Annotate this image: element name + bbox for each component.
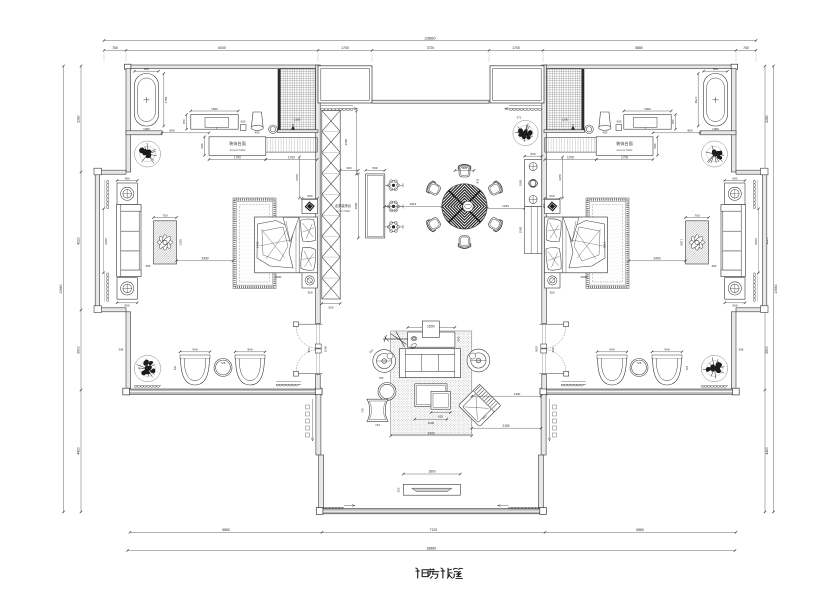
svg-text:Accent Table: Accent Table — [230, 148, 246, 152]
svg-text:600: 600 — [125, 176, 130, 180]
svg-text:1750: 1750 — [164, 96, 168, 103]
svg-text:10660: 10660 — [59, 284, 63, 294]
svg-text:390: 390 — [146, 264, 151, 268]
svg-text:600: 600 — [200, 143, 204, 148]
svg-text:装饰台面: 装饰台面 — [616, 140, 633, 147]
svg-text:1700: 1700 — [621, 155, 628, 159]
svg-text:940: 940 — [192, 347, 197, 351]
svg-text:走廊装饰台: 走廊装饰台 — [335, 203, 351, 208]
svg-text:450: 450 — [603, 131, 608, 135]
svg-text:800: 800 — [169, 129, 174, 133]
svg-text:600: 600 — [732, 304, 737, 308]
svg-text:1350: 1350 — [179, 239, 183, 246]
svg-text:500: 500 — [328, 306, 333, 310]
svg-text:装饰台面: 装饰台面 — [229, 140, 246, 147]
svg-text:2100: 2100 — [754, 238, 758, 245]
svg-text:300: 300 — [307, 291, 312, 295]
svg-text:1350: 1350 — [680, 239, 684, 246]
svg-text:500: 500 — [530, 152, 535, 156]
svg-text:1700: 1700 — [234, 155, 241, 159]
svg-text:1500: 1500 — [519, 226, 523, 233]
svg-text:5880: 5880 — [222, 528, 230, 532]
svg-text:1600: 1600 — [323, 345, 327, 352]
svg-text:600: 600 — [653, 143, 657, 148]
svg-text:1700: 1700 — [341, 46, 349, 50]
svg-text:Accent Table: Accent Table — [336, 210, 351, 213]
svg-text:600: 600 — [241, 120, 246, 124]
svg-text:390: 390 — [712, 264, 717, 268]
svg-text:23660: 23660 — [424, 35, 436, 40]
svg-text:110: 110 — [173, 365, 177, 370]
svg-text:2190: 2190 — [502, 424, 509, 428]
svg-text:2430: 2430 — [201, 256, 208, 260]
svg-text:368: 368 — [739, 348, 744, 352]
svg-text:720: 720 — [361, 408, 365, 413]
svg-text:400: 400 — [462, 166, 467, 170]
svg-text:2900: 2900 — [77, 346, 81, 354]
svg-text:2280: 2280 — [765, 115, 769, 123]
svg-text:1800: 1800 — [428, 470, 435, 474]
svg-text:16880: 16880 — [426, 546, 436, 550]
svg-text:1300: 1300 — [294, 118, 301, 122]
svg-text:500: 500 — [549, 194, 554, 198]
svg-text:600: 600 — [732, 176, 737, 180]
svg-text:750: 750 — [379, 376, 384, 380]
svg-text:2000: 2000 — [354, 202, 358, 209]
svg-text:1970: 1970 — [295, 174, 299, 181]
svg-text:800: 800 — [144, 67, 149, 71]
svg-text:2000: 2000 — [275, 275, 282, 279]
svg-text:620: 620 — [438, 415, 443, 419]
svg-text:2400: 2400 — [427, 431, 434, 435]
svg-text:800: 800 — [307, 347, 311, 352]
svg-text:940: 940 — [247, 347, 252, 351]
svg-text:1700: 1700 — [567, 155, 574, 159]
svg-text:800: 800 — [551, 348, 555, 353]
svg-text:4220: 4220 — [77, 237, 81, 245]
svg-text:Accent Table: Accent Table — [617, 148, 633, 152]
svg-text:2280: 2280 — [344, 138, 348, 145]
svg-text:350: 350 — [182, 119, 186, 124]
svg-text:812: 812 — [476, 178, 480, 183]
svg-text:2430: 2430 — [653, 256, 660, 260]
svg-text:940: 940 — [664, 347, 669, 351]
svg-text:760: 760 — [743, 46, 749, 50]
svg-text:1600: 1600 — [535, 346, 539, 353]
svg-text:4420: 4420 — [77, 447, 81, 455]
svg-text:590: 590 — [372, 166, 377, 170]
svg-text:1000: 1000 — [428, 421, 435, 425]
svg-text:1500: 1500 — [644, 107, 651, 111]
svg-text:5880: 5880 — [636, 528, 644, 532]
svg-text:1200: 1200 — [562, 118, 569, 122]
svg-text:150: 150 — [542, 203, 546, 208]
svg-text:350: 350 — [397, 487, 401, 492]
svg-text:800: 800 — [687, 129, 692, 133]
svg-text:7120: 7120 — [430, 528, 438, 532]
svg-text:2280: 2280 — [77, 115, 81, 123]
svg-text:1400: 1400 — [256, 241, 260, 248]
svg-text:1500: 1500 — [211, 107, 218, 111]
svg-text:450: 450 — [255, 131, 260, 135]
svg-text:940: 940 — [609, 347, 614, 351]
svg-text:1750: 1750 — [694, 97, 698, 104]
svg-text:1060: 1060 — [143, 127, 150, 131]
svg-text:2900: 2900 — [765, 346, 769, 354]
svg-text:2100: 2100 — [104, 238, 108, 245]
svg-text:110: 110 — [685, 366, 689, 371]
svg-text:725: 725 — [637, 361, 642, 365]
svg-text:371: 371 — [517, 116, 522, 120]
svg-text:1060: 1060 — [712, 127, 719, 131]
svg-text:1814: 1814 — [410, 202, 417, 206]
svg-text:368: 368 — [119, 348, 124, 352]
svg-text:1500: 1500 — [519, 179, 523, 186]
svg-text:2000: 2000 — [581, 275, 588, 279]
svg-text:6000: 6000 — [218, 46, 226, 50]
svg-text:1700: 1700 — [288, 155, 295, 159]
svg-text:1234: 1234 — [502, 204, 509, 208]
svg-text:4420: 4420 — [765, 447, 769, 455]
svg-text:700: 700 — [694, 213, 699, 217]
svg-text:1970: 1970 — [558, 174, 562, 181]
svg-text:1700: 1700 — [512, 46, 520, 50]
svg-text:600: 600 — [124, 304, 129, 308]
svg-text:5880: 5880 — [635, 46, 643, 50]
svg-text:1500: 1500 — [427, 325, 435, 329]
svg-text:700: 700 — [162, 213, 167, 217]
svg-text:600: 600 — [617, 120, 622, 124]
svg-text:1390: 1390 — [514, 392, 521, 396]
svg-text:350: 350 — [671, 119, 675, 124]
svg-text:3720: 3720 — [427, 46, 435, 50]
svg-text:500: 500 — [457, 336, 461, 341]
svg-text:500: 500 — [307, 194, 312, 198]
svg-text:10660: 10660 — [774, 284, 778, 294]
svg-text:725: 725 — [221, 361, 226, 365]
svg-text:300: 300 — [549, 291, 554, 295]
svg-text:1400: 1400 — [603, 242, 607, 249]
svg-text:734: 734 — [375, 423, 380, 427]
svg-text:800: 800 — [713, 67, 718, 71]
svg-text:900: 900 — [346, 166, 351, 170]
svg-text:760: 760 — [112, 46, 118, 50]
